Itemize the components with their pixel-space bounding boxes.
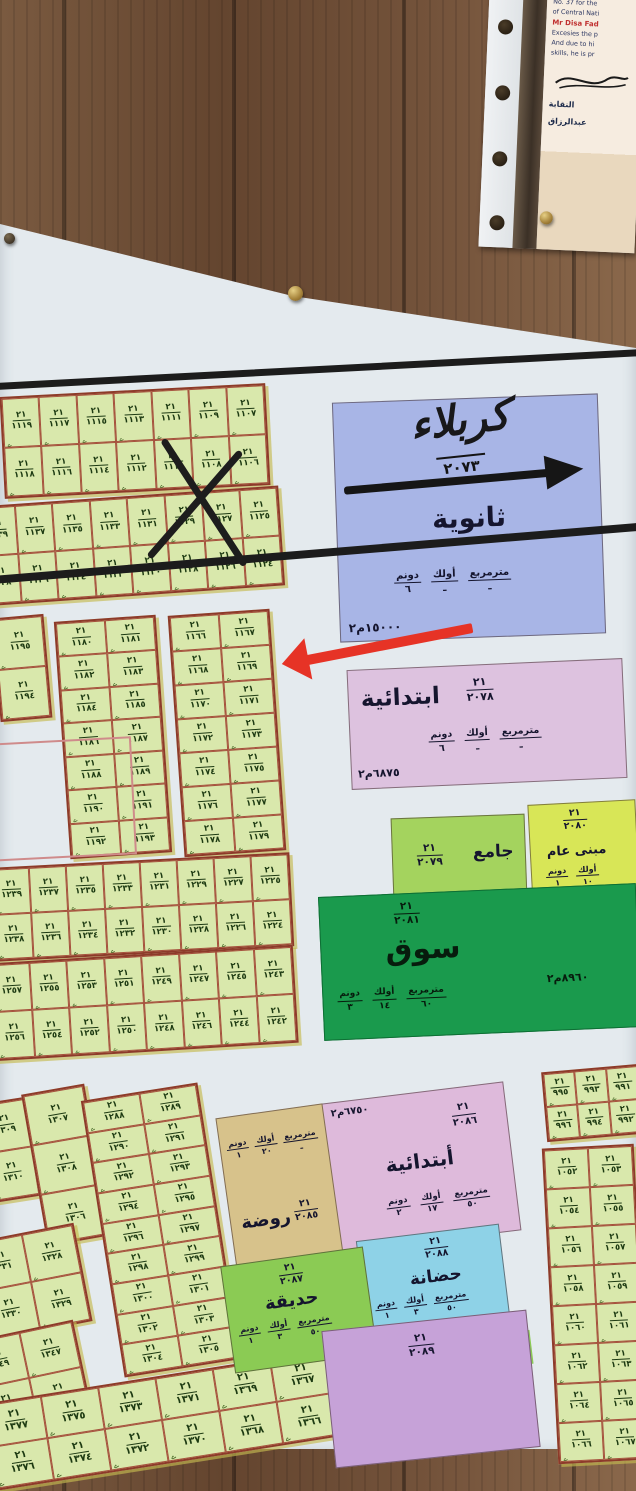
plot-cell-١١١٦: ٢١١١١٦ے bbox=[42, 444, 82, 495]
plot-cell-١٢٣٧: ٢١١٢٣٧ے bbox=[29, 866, 68, 913]
plot-cell-١٠٦١: ٢١١٠٦١ے bbox=[596, 1302, 636, 1343]
plot-cell-١٢٤٥: ٢١١٢٤٥ے bbox=[216, 949, 256, 998]
unit-column: دونم٦ bbox=[394, 569, 422, 598]
unit-column: مترمربعـ bbox=[282, 1127, 320, 1154]
plot-cell-١٢٣١: ٢١١٢٣١ے bbox=[140, 860, 179, 907]
plot-cell-١٠٦٣: ٢١١٠٦٣ے bbox=[598, 1341, 636, 1382]
facility-primary-school-2078: ٢١٢٠٧٨ ابتدائية مترمربعـأولكـدونم٦ ٦٨٧٥م… bbox=[347, 658, 628, 790]
plot-cell-١١١٤: ٢١١١١٤ے bbox=[79, 442, 119, 493]
plot-cell-١١٧٤: ٢١١١٧٤ے bbox=[179, 750, 230, 787]
plot-cell-١٢٢٩: ٢١١٢٢٩ے bbox=[177, 858, 216, 905]
facility-block-2089: ٢١٢٠٨٩ bbox=[321, 1310, 540, 1469]
plastic-sleeve: No. 37 for the of Central Nati Mr Disa F… bbox=[478, 0, 636, 253]
plot-cell-١١١٥: ٢١١١١٥ے bbox=[76, 393, 116, 444]
punch-hole-icon bbox=[492, 151, 508, 167]
unit-column: أولكـ bbox=[464, 727, 491, 755]
plot-cell-١٠٥٥: ٢١١٠٥٥ے bbox=[590, 1185, 636, 1226]
plot-cell-١٢٣٥: ٢١١٢٣٥ے bbox=[66, 864, 105, 911]
block-number-fraction: ٢١٢٠٧٨ bbox=[466, 675, 494, 705]
plot-cell-١٢٢٥: ٢١١٢٢٥ے bbox=[250, 854, 289, 901]
plot-block-1166-1179: ٢١١١٦٦ے٢١١١٦٧ے٢١١١٦٨ے٢١١١٦٩ے٢١١١٧٠ے٢١١١٧… bbox=[168, 609, 287, 858]
plot-cell-١٢٣٤: ٢١١٢٣٤ے bbox=[68, 909, 107, 956]
pin-icon bbox=[288, 286, 303, 301]
area-value: ٦٧٥٠م٢ bbox=[330, 1104, 369, 1120]
plot-cell-١١٨٢: ٢١١١٨٢ے bbox=[58, 654, 109, 691]
facility-label: أبتدائية bbox=[384, 1145, 455, 1177]
block-number-fraction: ٢١٢٠٨٠ bbox=[563, 807, 588, 833]
plot-cell-١١٧٥: ٢١١١٧٥ے bbox=[228, 747, 279, 784]
plot-cell-١١٧٧: ٢١١١٧٧ے bbox=[231, 780, 282, 817]
plot-cell-١١٧٩: ٢١١١٧٩ے bbox=[233, 814, 284, 851]
plot-cell-١٢٥٢: ٢١١٢٥٢ے bbox=[69, 1005, 109, 1054]
plot-cell-١٣٧٠: ٢١١٣٧٠ے bbox=[162, 1411, 226, 1462]
plot-cell-١٣٦٨: ٢١١٣٦٨ے bbox=[219, 1402, 283, 1453]
unit-column: دونم١ bbox=[374, 1298, 399, 1323]
facility-label: روضة bbox=[240, 1206, 292, 1234]
plot-cell-١٠٦٧: ٢١١٠٦٧ے bbox=[602, 1419, 636, 1460]
block-number-fraction: ٢١٢٠٨٩ bbox=[407, 1331, 435, 1361]
plot-cell-١٠٥٧: ٢١١٠٥٧ے bbox=[592, 1224, 636, 1265]
unit-column: مترمربع٥٠ bbox=[452, 1185, 492, 1213]
plot-cell-١٢٥٠: ٢١١٢٥٠ے bbox=[107, 1003, 147, 1052]
plot-cell-١٠٦٢: ٢١١٠٦٢ے bbox=[554, 1343, 600, 1384]
plot-cell-١٠٦٥: ٢١١٠٦٥ے bbox=[600, 1380, 636, 1421]
plot-cell-١١٨١: ٢١١١٨١ے bbox=[105, 617, 156, 654]
unit-column: أولك٣ bbox=[267, 1319, 292, 1344]
plot-block-1194-1195: ٢١١١٩٥ے٢١١١٩٤ے bbox=[0, 614, 52, 722]
unit-column: أولك١٧ bbox=[419, 1191, 445, 1218]
plot-cell-١١٣٣: ٢١١١٣٣ے bbox=[89, 498, 130, 548]
plot-cell-١١٣٥: ٢١١١٣٥ے bbox=[52, 501, 93, 551]
plot-cell-٩٩٢: ٢١٩٩٢ے bbox=[609, 1099, 636, 1135]
plot-cell-١٠٥٣: ٢١١٠٥٣ے bbox=[588, 1146, 634, 1187]
plot-block-1242-1257: ٢١١٢٥٧ے٢١١٢٥٥ے٢١١٢٥٣ے٢١١٢٥١ے٢١١٢٤٩ے٢١١٢٤… bbox=[0, 945, 299, 1061]
plot-cell-١٢٢٤: ٢١١٢٢٤ے bbox=[253, 899, 292, 946]
plot-cell-١١٧٣: ٢١١١٧٣ے bbox=[226, 713, 277, 750]
plot-cell-١١١٨: ٢١١١١٨ے bbox=[4, 446, 44, 497]
plot-cell-١٢٤٨: ٢١١٢٤٨ے bbox=[144, 1001, 184, 1050]
plot-cell-١١٦٩: ٢١١١٦٩ے bbox=[221, 645, 272, 682]
plot-cell-١١٠٧: ٢١١١٠٧ے bbox=[226, 385, 266, 436]
unit-column: مترمربعـ bbox=[500, 725, 543, 753]
plot-cell-٩٩٣: ٢١٩٩٣ے bbox=[575, 1069, 609, 1105]
unit-column: دونم١ bbox=[238, 1323, 263, 1348]
handwritten-arrowhead-icon bbox=[544, 452, 585, 490]
plot-cell-١١٨٥: ٢١١١٨٥ے bbox=[110, 684, 161, 721]
plot-cell-١١٩٥: ٢١١١٩٥ے bbox=[0, 616, 46, 670]
unit-column: دونم٦ bbox=[428, 728, 455, 756]
plot-cell-١٢٢٧: ٢١١٢٢٧ے bbox=[214, 856, 253, 903]
plot-cell-١٢٢٦: ٢١١٢٢٦ے bbox=[216, 901, 255, 948]
unit-column: دونم١ bbox=[226, 1137, 251, 1162]
plot-cell-١٢٤٢: ٢١١٢٤٢ے bbox=[256, 994, 296, 1043]
plot-cell-١٣٢٩: ٢١١٣٢٩ے bbox=[31, 1272, 90, 1329]
units-table: مترمربعـأولكـدونم٦ bbox=[428, 725, 542, 757]
units-table: مترمربع٦٠أولك١٤دونم٣ bbox=[337, 985, 447, 1015]
plot-block-1052-1067: ٢١١٠٥٢ے٢١١٠٥٣ے٢١١٠٥٤ے٢١١٠٥٥ے٢١١٠٥٦ے٢١١٠٥… bbox=[542, 1144, 636, 1464]
facility-label: حديقة bbox=[263, 1286, 319, 1314]
block-number-fraction: ٢١٢٠٨١ bbox=[393, 900, 420, 929]
unit-column: أولك٣ bbox=[403, 1294, 428, 1319]
plot-cell-١٠٦٠: ٢١١٠٦٠ے bbox=[552, 1304, 598, 1345]
plot-block-991-996: ٢١٩٩٥ے٢١٩٩٣ے٢١٩٩١ے٢١٩٩٦ے٢١٩٩٤ے٢١٩٩٢ے bbox=[541, 1064, 636, 1142]
pin-icon bbox=[4, 233, 15, 244]
plot-cell-١١٦٧: ٢١١١٦٧ے bbox=[219, 611, 270, 648]
plot-cell-٩٩٤: ٢١٩٩٤ے bbox=[577, 1102, 611, 1138]
plot-cell-١١٩٤: ٢١١١٩٤ے bbox=[0, 666, 50, 720]
plot-cell-١٢٤٩: ٢١١٢٤٩ے bbox=[141, 954, 181, 1003]
plot-cell-١١٠٩: ٢١١١٠٩ے bbox=[188, 387, 228, 438]
plot-cell-١٢٢٨: ٢١١٢٢٨ے bbox=[179, 903, 218, 950]
plot-cell-١١١٢: ٢١١١١٢ے bbox=[116, 440, 156, 491]
plot-cell-٩٩١: ٢١٩٩١ے bbox=[606, 1066, 636, 1102]
units-table: مترمربعـأولكـدونم٦ bbox=[394, 566, 512, 598]
signature-icon bbox=[549, 66, 630, 95]
plot-cell-١٣٧٢: ٢١١٣٧٢ے bbox=[105, 1420, 169, 1471]
plot-cell-١٠٥٤: ٢١١٠٥٤ے bbox=[546, 1187, 592, 1228]
plot-cell-١٢٥٦: ٢١١٢٥٦ے bbox=[0, 1010, 35, 1059]
unit-column: أولكـ bbox=[431, 567, 459, 596]
units-table: مترمربع٥٠أولك٣دونم١ bbox=[238, 1313, 334, 1348]
plot-cell-١٢٣٣: ٢١١٢٣٣ے bbox=[103, 862, 142, 909]
units-table: مترمربعـأولك٢٠دونم١ bbox=[226, 1127, 320, 1162]
facility-label: جامع bbox=[472, 841, 513, 862]
unit-column: مترمربعـ bbox=[467, 566, 511, 596]
plot-cell-١١١٣: ٢١١١١٣ے bbox=[114, 391, 154, 442]
plot-cell-١٣٧٦: ٢١١٣٧٦ے bbox=[0, 1438, 54, 1489]
unit-column: مترمربع٦٠ bbox=[406, 985, 447, 1012]
facility-label: مبنى عام bbox=[546, 842, 606, 860]
block-number-fraction: ٢١٢٠٨٥ bbox=[292, 1196, 319, 1224]
plot-cell-١١٦٨: ٢١١١٦٨ے bbox=[172, 648, 223, 685]
photo-of-zoning-map: { "certificate": { "lines_top": ["No. 37… bbox=[0, 0, 636, 1449]
plot-cell-١١٧١: ٢١١١٧١ے bbox=[223, 679, 274, 716]
unit-column: مترمربع٥٠ bbox=[432, 1289, 470, 1316]
plot-cell-١١٧٦: ٢١١١٧٦ے bbox=[182, 784, 233, 821]
plot-cell-٩٩٥: ٢١٩٩٥ے bbox=[543, 1071, 577, 1107]
plot-cell-١٠٥٨: ٢١١٠٥٨ے bbox=[550, 1265, 596, 1306]
plot-cell-١٢٣٨: ٢١١٢٣٨ے bbox=[0, 913, 34, 960]
area-value: ٨٩٦٠م٢ bbox=[547, 970, 589, 985]
plot-cell-١٢٥٤: ٢١١٢٥٤ے bbox=[32, 1008, 72, 1057]
plot-cell-١٠٥٦: ٢١١٠٥٦ے bbox=[548, 1226, 594, 1267]
unit-column: دونم٢ bbox=[385, 1195, 411, 1222]
plot-block-1106-1119: ٢١١١١٩ے٢١١١١٧ے٢١١١١٥ے٢١١١١٣ے٢١١١١١ے٢١١١٠… bbox=[0, 383, 270, 499]
plot-cell-١١٧٨: ٢١١١٧٨ے bbox=[184, 818, 235, 855]
plot-cell-١٢٥٧: ٢١١٢٥٧ے bbox=[0, 963, 32, 1012]
plot-cell-١٢٣٩: ٢١١٢٣٩ے bbox=[0, 868, 31, 915]
area-value: ٦٨٧٥م٢ bbox=[358, 766, 400, 781]
plot-block-1224-1239: ٢١١٢٣٩ے٢١١٢٣٧ے٢١١٢٣٥ے٢١١٢٣٣ے٢١١٢٣١ے٢١١٢٢… bbox=[0, 852, 294, 962]
plot-cell-١٢٤٦: ٢١١٢٤٦ے bbox=[181, 998, 221, 1047]
plot-cell-١١٧٢: ٢١١١٧٢ے bbox=[177, 716, 228, 753]
plot-cell-١١٦٦: ٢١١١٦٦ے bbox=[170, 614, 221, 651]
punch-hole-icon bbox=[495, 85, 511, 101]
facility-label: حضانة bbox=[409, 1264, 463, 1290]
unit-column: دونم٣ bbox=[337, 988, 363, 1014]
plot-cell-١١٢٥: ٢١١١٢٥ے bbox=[239, 488, 280, 538]
block-number-fraction: ٢١٢٠٨٨ bbox=[423, 1234, 450, 1262]
plot-cell-٩٩٦: ٢١٩٩٦ے bbox=[546, 1104, 580, 1140]
certificate-arabic-text: عبدالرزاق bbox=[548, 113, 636, 134]
plot-cell-١٣٧٤: ٢١١٣٧٤ے bbox=[47, 1429, 111, 1480]
plot-cell-١٠٦٤: ٢١١٠٦٤ے bbox=[556, 1382, 602, 1423]
facility-label: سوق bbox=[385, 930, 462, 968]
plot-cell-١٠٥٩: ٢١١٠٥٩ے bbox=[594, 1263, 636, 1304]
punch-hole-icon bbox=[498, 19, 514, 35]
plot-cell-١١٨٠: ٢١١١٨٠ے bbox=[56, 620, 107, 657]
plot-cell-١٠٦٦: ٢١١٠٦٦ے bbox=[558, 1421, 604, 1462]
plot-cell-١٢٣٦: ٢١١٢٣٦ے bbox=[31, 911, 70, 958]
plot-cell-١٠٥٢: ٢١١٠٥٢ے bbox=[544, 1148, 590, 1189]
units-table: مترمربع٥٠أولك١٧دونم٢ bbox=[385, 1185, 492, 1221]
plot-cell-١١١٩: ٢١١١١٩ے bbox=[2, 397, 42, 448]
block-number-fraction: ٢١٢٠٨٧ bbox=[277, 1260, 304, 1288]
plot-cell-١١٣٧: ٢١١١٣٧ے bbox=[14, 503, 55, 553]
block-number-fraction: ٢١٢٠٨٦ bbox=[450, 1100, 477, 1129]
plot-cell-١١٨٤: ٢١١١٨٤ے bbox=[61, 687, 112, 724]
unit-column: أولك١٤ bbox=[372, 987, 398, 1013]
plot-cell-١٢٤٧: ٢١١٢٤٧ے bbox=[179, 952, 219, 1001]
facility-label: ابتدائية bbox=[360, 683, 440, 712]
plot-cell-١٢٣٠: ٢١١٢٣٠ے bbox=[142, 905, 181, 952]
plot-cell-١١١٧: ٢١١١١٧ے bbox=[39, 395, 79, 446]
plot-cell-١٢٥١: ٢١١٢٥١ے bbox=[104, 956, 144, 1005]
plot-cell-١٢٤٣: ٢١١٢٤٣ے bbox=[253, 947, 293, 996]
plot-cell-١٢٥٥: ٢١١٢٥٥ے bbox=[29, 961, 69, 1010]
plot-cell-١١٨٣: ٢١١١٨٣ے bbox=[107, 650, 158, 687]
plot-cell-١٢٤٤: ٢١١٢٤٤ے bbox=[219, 996, 259, 1045]
empty-outlined-block bbox=[0, 736, 137, 861]
plot-cell-١٢٣٢: ٢١١٢٣٢ے bbox=[105, 907, 144, 954]
plot-cell-١١١١: ٢١١١١١ے bbox=[151, 389, 191, 440]
unit-column: أولك٢٠ bbox=[254, 1133, 279, 1158]
plot-cell-١٢٥٣: ٢١١٢٥٣ے bbox=[66, 958, 106, 1007]
plot-cell-١١٧٠: ٢١١١٧٠ے bbox=[175, 682, 226, 719]
facility-market: ٢١٢٠٨١ سوق مترمربع٦٠أولك١٤دونم٣ ٨٩٦٠م٢ bbox=[318, 883, 636, 1041]
block-number-fraction: ٢١٢٠٧٩ bbox=[416, 842, 443, 871]
punch-hole-icon bbox=[489, 215, 505, 231]
